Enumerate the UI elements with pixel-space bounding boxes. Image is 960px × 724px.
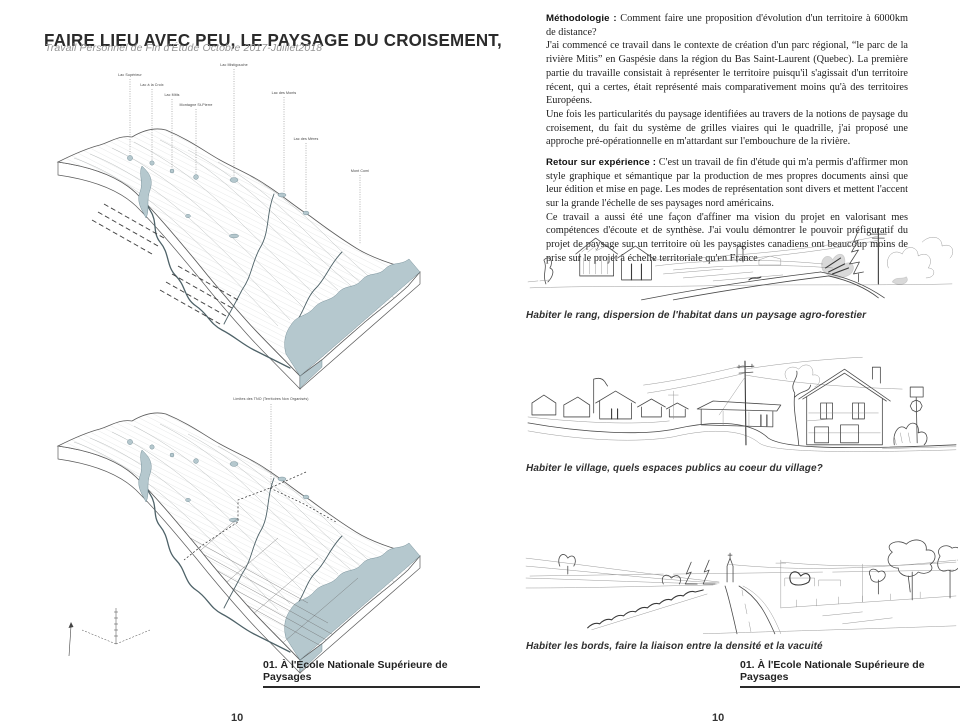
map-label: Montagne St-Pierre: [180, 103, 213, 107]
map-label: Lac des Monts: [272, 91, 297, 95]
right-page: Méthodologie : Comment faire une proposi…: [480, 0, 960, 720]
page-subtitle: Travail Personnel de Fin d'Étude Octobre…: [45, 42, 322, 54]
paragraph-lead: Méthodologie :: [546, 13, 617, 24]
map-label: Lac à la Croix: [140, 83, 163, 87]
isometric-terrain-map-top: Lac Supérieur Lac à la Croix Lac Mitis M…: [38, 54, 448, 390]
isometric-terrain-map-bottom: Limites des TNO (Territoires Non Organis…: [38, 390, 448, 676]
sketch-caption-bords: Habiter les bords, faire la liaison entr…: [526, 641, 823, 652]
paragraph-methodologie: Méthodologie : Comment faire une proposi…: [546, 12, 908, 149]
paragraph-lead: Retour sur expérience :: [546, 157, 656, 168]
page-number-right: 10: [712, 712, 724, 724]
sketch-bords: [524, 536, 958, 636]
isometric-scale-icon: [82, 608, 150, 644]
footer-caption-left: 01. À l'Ecole Nationale Supérieure de Pa…: [263, 659, 480, 688]
sketch-caption-rang: Habiter le rang, dispersion de l'habitat…: [526, 310, 866, 321]
tno-boundary-label: Limites des TNO (Territoires Non Organis…: [233, 397, 308, 401]
map-label: Mont Comi: [351, 169, 369, 173]
sketch-caption-village: Habiter le village, quels espaces public…: [526, 463, 823, 474]
sketch-rang: [524, 224, 958, 302]
page-number-left: 10: [231, 712, 243, 724]
north-arrow-icon: [69, 622, 74, 656]
map-label: Lac Supérieur: [118, 73, 142, 77]
footer-caption-right: 01. À l'Ecole Nationale Supérieure de Pa…: [740, 659, 960, 688]
map-label: Lac des Mères: [294, 137, 319, 141]
sketch-village: [524, 352, 958, 458]
paragraph-body: Comment faire une proposition d'évolutio…: [546, 13, 908, 147]
portfolio-spread: { "left_page": { "title": "FAIRE LIEU AV…: [0, 0, 960, 720]
map-label: Lac Mitis: [164, 93, 179, 97]
map-label: Lac Mistigouche: [220, 63, 247, 67]
left-page: FAIRE LIEU AVEC PEU, LE PAYSAGE DU CROIS…: [0, 0, 480, 720]
